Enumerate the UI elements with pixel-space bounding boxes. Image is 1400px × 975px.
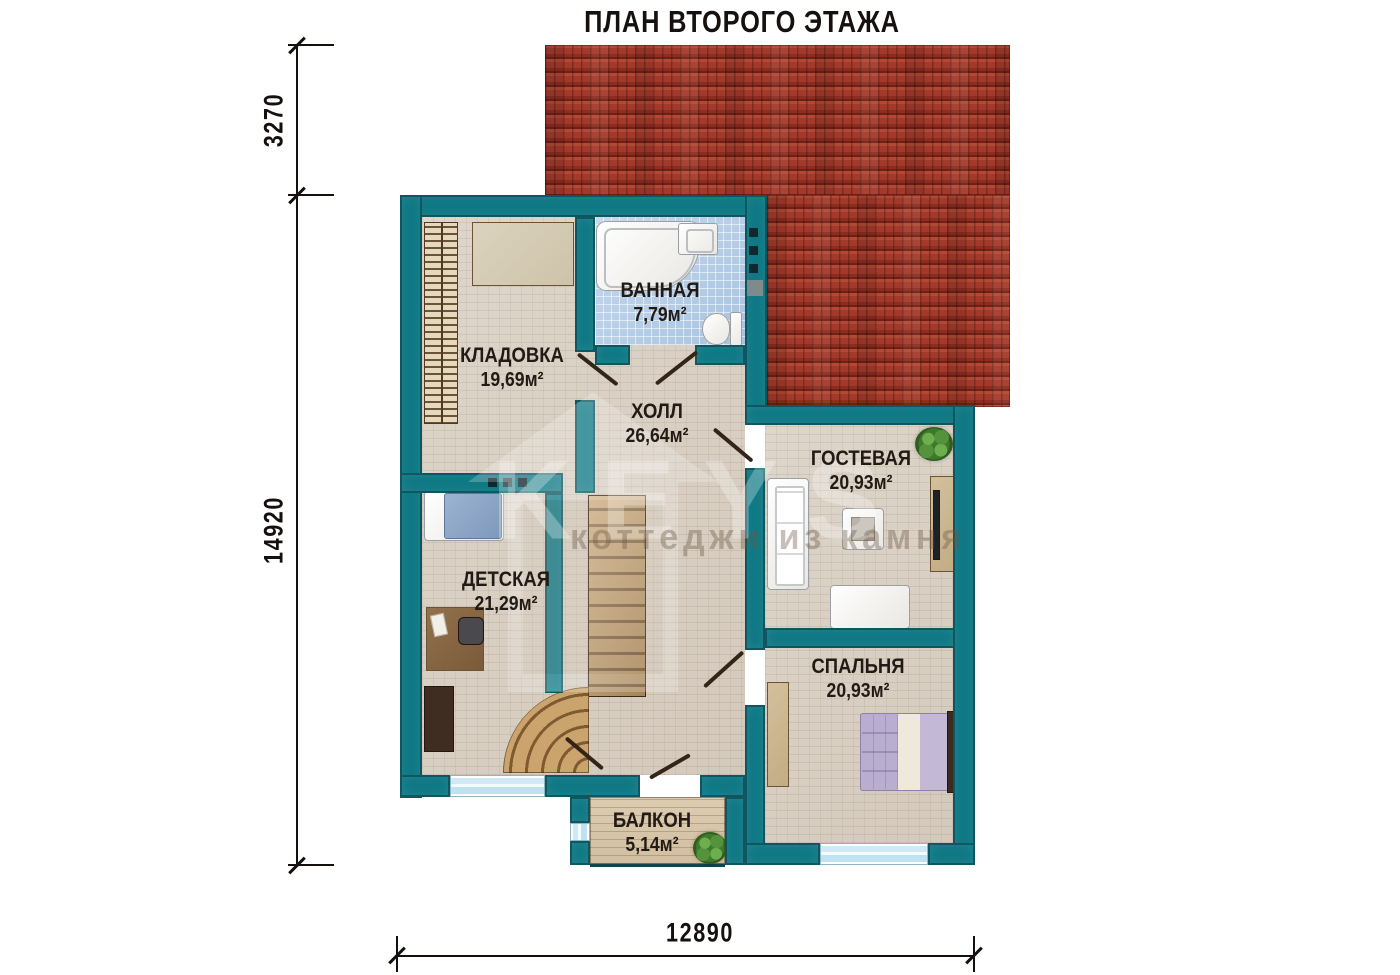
toilet-bowl-icon <box>702 313 730 345</box>
wall-switch <box>749 246 758 255</box>
wall-segment <box>745 705 765 865</box>
room-label-bathroom: ВАННАЯ 7,79м² <box>615 279 705 327</box>
wall-segment <box>575 217 595 352</box>
wall-switch <box>749 228 758 237</box>
wardrobe-rack-icon <box>424 222 458 424</box>
room-label-storage: КЛАДОВКА 19,69м² <box>453 344 571 392</box>
page-title: ПЛАН ВТОРОГО ЭТАЖА <box>549 4 934 40</box>
wall-segment <box>545 775 640 797</box>
dimension-value-height: 14920 <box>259 487 290 572</box>
wall-segment <box>725 797 745 865</box>
window-children-room <box>450 775 545 797</box>
wall-segment <box>595 345 630 365</box>
wall-segment <box>745 405 975 425</box>
wall-segment <box>765 628 955 648</box>
floor-plan: ПЛАН ВТОРОГО ЭТАЖА <box>0 0 1400 975</box>
roof-tiles-right <box>767 195 1010 407</box>
wall-segment <box>700 775 745 797</box>
bedroom-wardrobe-icon <box>767 682 789 787</box>
wall-panel <box>747 280 763 296</box>
dimension-line-horizontal <box>397 955 975 957</box>
toilet-tank-icon <box>730 312 742 346</box>
dimension-line-vertical <box>296 45 298 866</box>
dresser-icon <box>424 686 454 752</box>
sink-basin <box>686 229 714 253</box>
room-label-children: ДЕТСКАЯ 21,29м² <box>456 568 556 616</box>
plant-icon <box>693 832 727 864</box>
window-bedroom <box>820 843 928 865</box>
wall-segment <box>570 841 590 865</box>
wall-segment <box>928 843 975 865</box>
storage-shelf-icon <box>472 222 574 286</box>
room-label-guest: ГОСТЕВАЯ 20,93м² <box>804 447 918 495</box>
plant-icon <box>915 427 953 461</box>
dimension-value-top: 3270 <box>259 86 290 154</box>
wall-segment <box>953 405 975 865</box>
wall-switch <box>749 264 758 273</box>
window-balcony <box>570 823 590 841</box>
wall-segment <box>745 843 820 865</box>
loveseat-icon <box>830 585 910 629</box>
wall-segment <box>400 195 422 798</box>
roof-tiles-top <box>545 45 1010 195</box>
wall-segment <box>400 775 450 797</box>
wall-segment <box>570 797 590 823</box>
watermark-subtext: коттеджи из камня <box>570 516 966 558</box>
wall-segment <box>695 345 745 365</box>
bed-quilt-pattern <box>862 715 898 789</box>
wall-segment <box>400 195 767 217</box>
room-label-hall: ХОЛЛ 26,64м² <box>621 400 693 448</box>
room-label-bedroom: СПАЛЬНЯ 20,93м² <box>805 655 911 703</box>
dimension-value-width: 12890 <box>657 918 742 949</box>
room-label-balcony: БАЛКОН 5,14м² <box>608 809 697 857</box>
desk-chair-icon <box>458 617 484 645</box>
